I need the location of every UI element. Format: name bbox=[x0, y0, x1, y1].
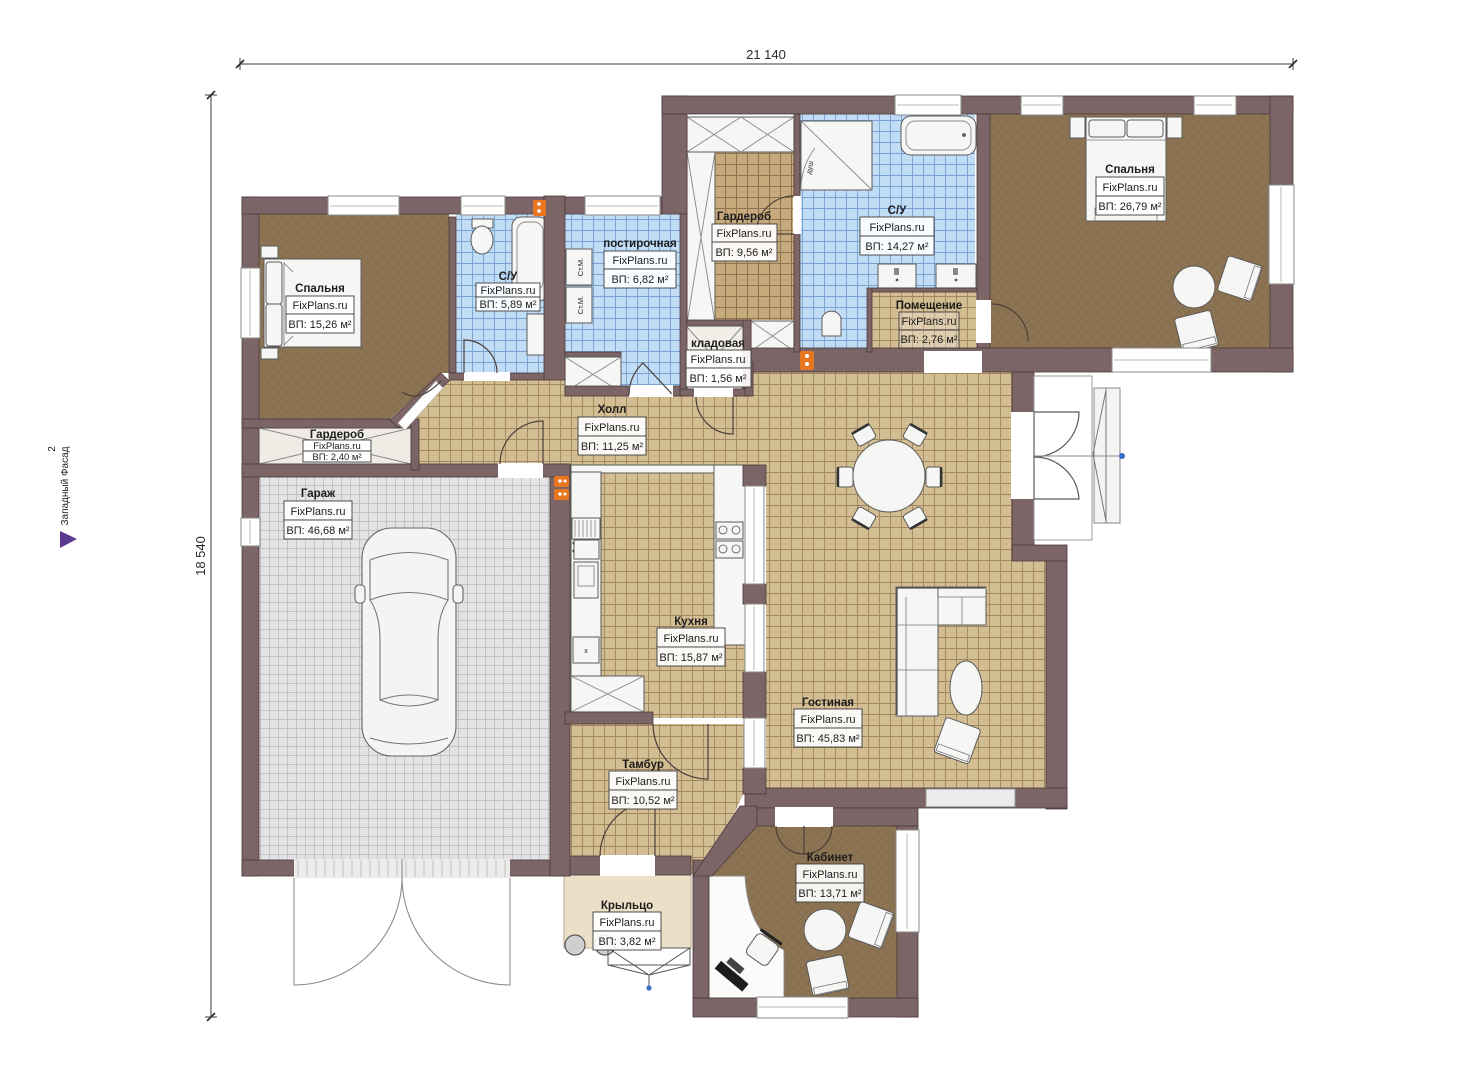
svg-text:FixPlans.ru: FixPlans.ru bbox=[690, 354, 745, 366]
svg-text:2: 2 bbox=[47, 446, 58, 452]
svg-text:FixPlans.ru: FixPlans.ru bbox=[663, 633, 718, 645]
svg-text:Крыльцо: Крыльцо bbox=[601, 900, 653, 912]
svg-text:FixPlans.ru: FixPlans.ru bbox=[584, 422, 639, 434]
svg-text:ВП: 2,76 м²: ВП: 2,76 м² bbox=[900, 334, 957, 346]
svg-text:Западный Фасад: Западный Фасад bbox=[60, 446, 71, 525]
svg-text:С/У: С/У bbox=[499, 271, 519, 283]
svg-text:ВП: 15,87 м²: ВП: 15,87 м² bbox=[659, 652, 723, 664]
svg-text:Кухня: Кухня bbox=[674, 616, 708, 628]
svg-text:FixPlans.ru: FixPlans.ru bbox=[615, 776, 670, 788]
svg-text:FixPlans.ru: FixPlans.ru bbox=[800, 714, 855, 726]
svg-text:Гардероб: Гардероб bbox=[310, 429, 364, 441]
svg-text:FixPlans.ru: FixPlans.ru bbox=[1102, 182, 1157, 194]
svg-text:ВП: 15,26 м²: ВП: 15,26 м² bbox=[288, 319, 352, 331]
svg-text:x: x bbox=[584, 648, 588, 655]
svg-text:Спальня: Спальня bbox=[295, 283, 345, 295]
svg-text:FixPlans.ru: FixPlans.ru bbox=[901, 316, 956, 328]
svg-text:ВП: 3,82 м²: ВП: 3,82 м² bbox=[598, 936, 655, 948]
svg-text:ВП: 1,56 м²: ВП: 1,56 м² bbox=[689, 373, 746, 385]
svg-text:кладовая: кладовая bbox=[691, 338, 745, 350]
svg-text:FixPlans.ru: FixPlans.ru bbox=[480, 285, 535, 297]
svg-text:ВП: 46,68 м²: ВП: 46,68 м² bbox=[286, 525, 350, 537]
svg-text:Тамбур: Тамбур bbox=[622, 759, 664, 771]
svg-text:FixPlans.ru: FixPlans.ru bbox=[612, 255, 667, 267]
svg-text:FixPlans.ru: FixPlans.ru bbox=[716, 228, 771, 240]
svg-text:постирочная: постирочная bbox=[603, 238, 676, 250]
svg-text:18 540: 18 540 bbox=[193, 536, 208, 576]
svg-text:Спальня: Спальня bbox=[1105, 164, 1155, 176]
svg-text:ВП: 14,27 м²: ВП: 14,27 м² bbox=[865, 241, 929, 253]
svg-text:ВП: 11,25 м²: ВП: 11,25 м² bbox=[581, 441, 644, 453]
svg-text:ВП: 5,89 м²: ВП: 5,89 м² bbox=[479, 299, 536, 311]
svg-text:FixPlans.ru: FixPlans.ru bbox=[599, 917, 654, 929]
svg-text:21 140: 21 140 bbox=[746, 47, 786, 62]
svg-text:ВП: 45,83 м²: ВП: 45,83 м² bbox=[796, 733, 860, 745]
svg-text:Гараж: Гараж bbox=[301, 488, 336, 500]
svg-text:ВП: 9,56 м²: ВП: 9,56 м² bbox=[715, 247, 772, 259]
svg-text:ВП: 13,71 м²: ВП: 13,71 м² bbox=[798, 888, 862, 900]
svg-text:Холл: Холл bbox=[598, 404, 627, 416]
svg-text:С/У: С/У bbox=[888, 205, 908, 217]
svg-text:FixPlans.ru: FixPlans.ru bbox=[802, 869, 857, 881]
svg-text:Помещение: Помещение bbox=[896, 300, 963, 312]
svg-text:Кабинет: Кабинет bbox=[807, 852, 854, 864]
svg-text:Ст.М.: Ст.М. bbox=[576, 258, 585, 276]
svg-text:FixPlans.ru: FixPlans.ru bbox=[869, 222, 924, 234]
svg-text:FixPlans.ru: FixPlans.ru bbox=[290, 506, 345, 518]
svg-text:FixPlans.ru: FixPlans.ru bbox=[292, 300, 347, 312]
svg-text:ВП: 10,52 м²: ВП: 10,52 м² bbox=[611, 795, 675, 807]
svg-text:ВП: 2,40 м²: ВП: 2,40 м² bbox=[312, 452, 361, 463]
svg-text:ВП: 6,82 м²: ВП: 6,82 м² bbox=[611, 274, 668, 286]
svg-text:FixPlans.ru: FixPlans.ru bbox=[313, 441, 361, 452]
svg-text:Гардероб: Гардероб bbox=[717, 211, 771, 223]
svg-text:Гостиная: Гостиная bbox=[802, 697, 854, 709]
svg-text:ВП: 26,79 м²: ВП: 26,79 м² bbox=[1098, 201, 1162, 213]
svg-text:Ст.М.: Ст.М. bbox=[576, 296, 585, 314]
